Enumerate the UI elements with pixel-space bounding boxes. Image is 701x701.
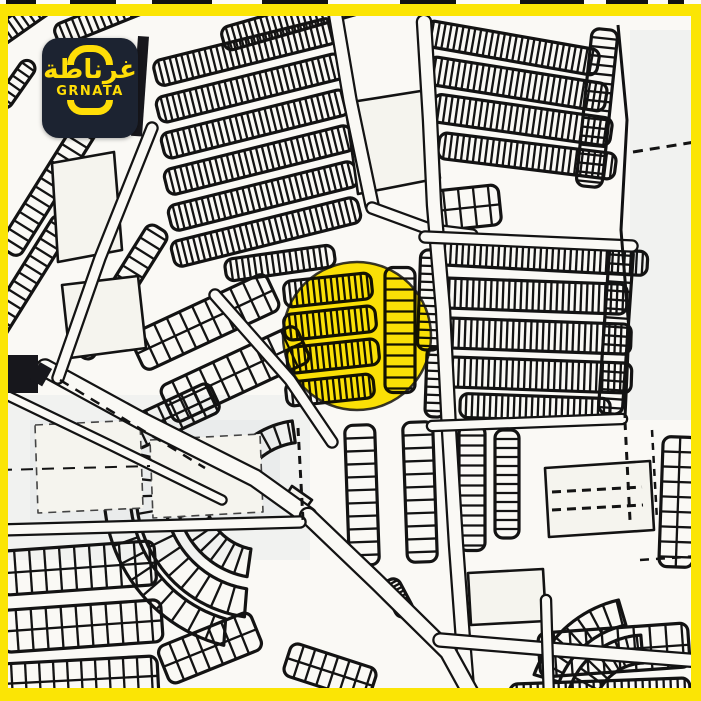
map-fragment	[520, 0, 584, 4]
empty-area-tint	[630, 30, 700, 420]
empty-plot	[545, 461, 654, 537]
logo-latin-text: GRNATA	[56, 85, 124, 98]
map-screenshot: غرناطة GRNATA	[0, 0, 701, 701]
logo-arabic-text: غرناطة	[43, 57, 137, 84]
map-fragment	[6, 0, 36, 4]
map-edge-strip	[0, 0, 701, 4]
map-fragment	[70, 0, 116, 4]
map-fragment	[400, 0, 456, 4]
empty-plot	[468, 569, 546, 625]
map-fragment	[262, 0, 328, 4]
grnata-logo: غرناطة GRNATA	[42, 38, 138, 138]
map-fragment	[668, 0, 684, 4]
map-fragment	[152, 0, 212, 4]
road	[546, 600, 549, 701]
map-fragment	[606, 0, 648, 4]
logo-ring-bottom-arc-icon	[67, 100, 113, 115]
